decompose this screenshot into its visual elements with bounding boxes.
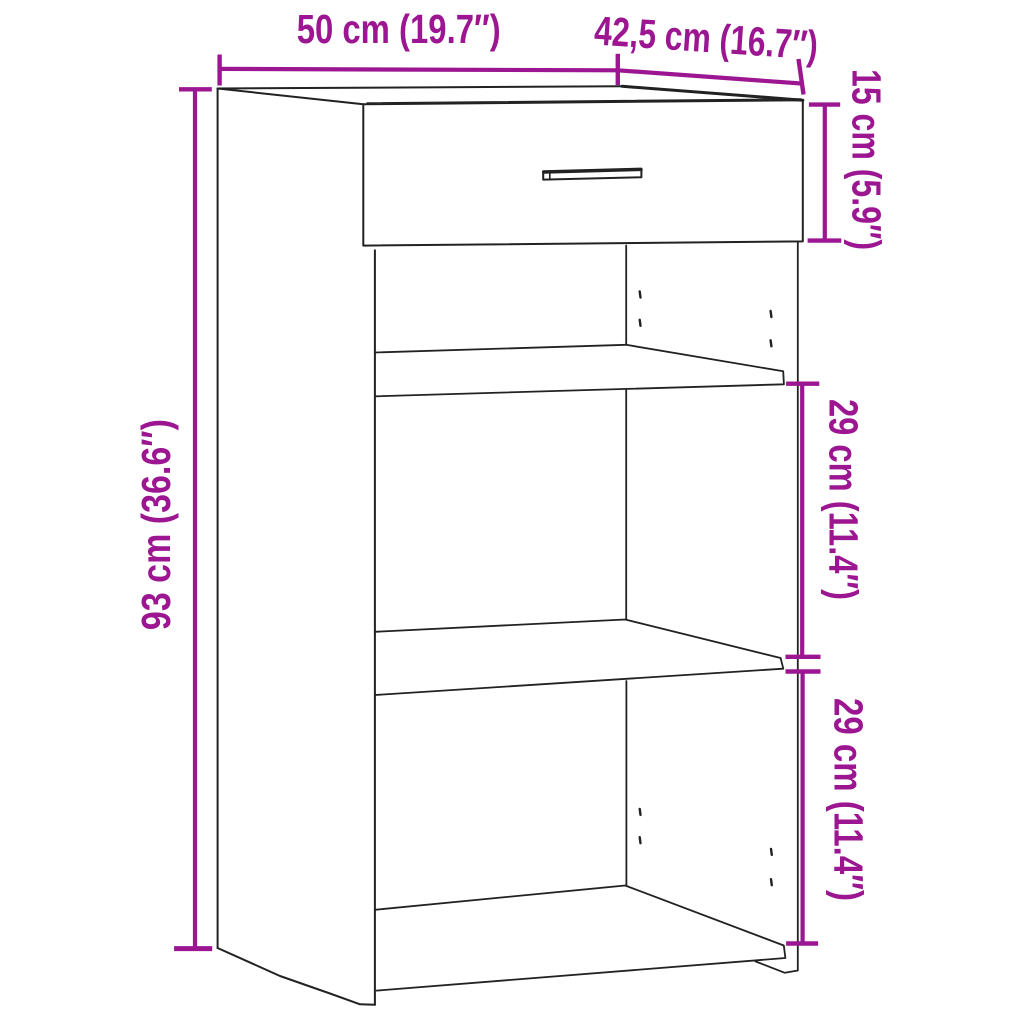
svg-text:29 cm (11.4″): 29 cm (11.4″) xyxy=(821,399,867,600)
svg-text:93 cm (36.6″): 93 cm (36.6″) xyxy=(133,419,179,630)
svg-text:42,5 cm (16.7″): 42,5 cm (16.7″) xyxy=(593,7,820,68)
svg-text:50 cm (19.7″): 50 cm (19.7″) xyxy=(297,6,501,52)
svg-text:15 cm (5.9″): 15 cm (5.9″) xyxy=(844,69,890,250)
svg-text:29 cm (11.4″): 29 cm (11.4″) xyxy=(826,698,872,901)
